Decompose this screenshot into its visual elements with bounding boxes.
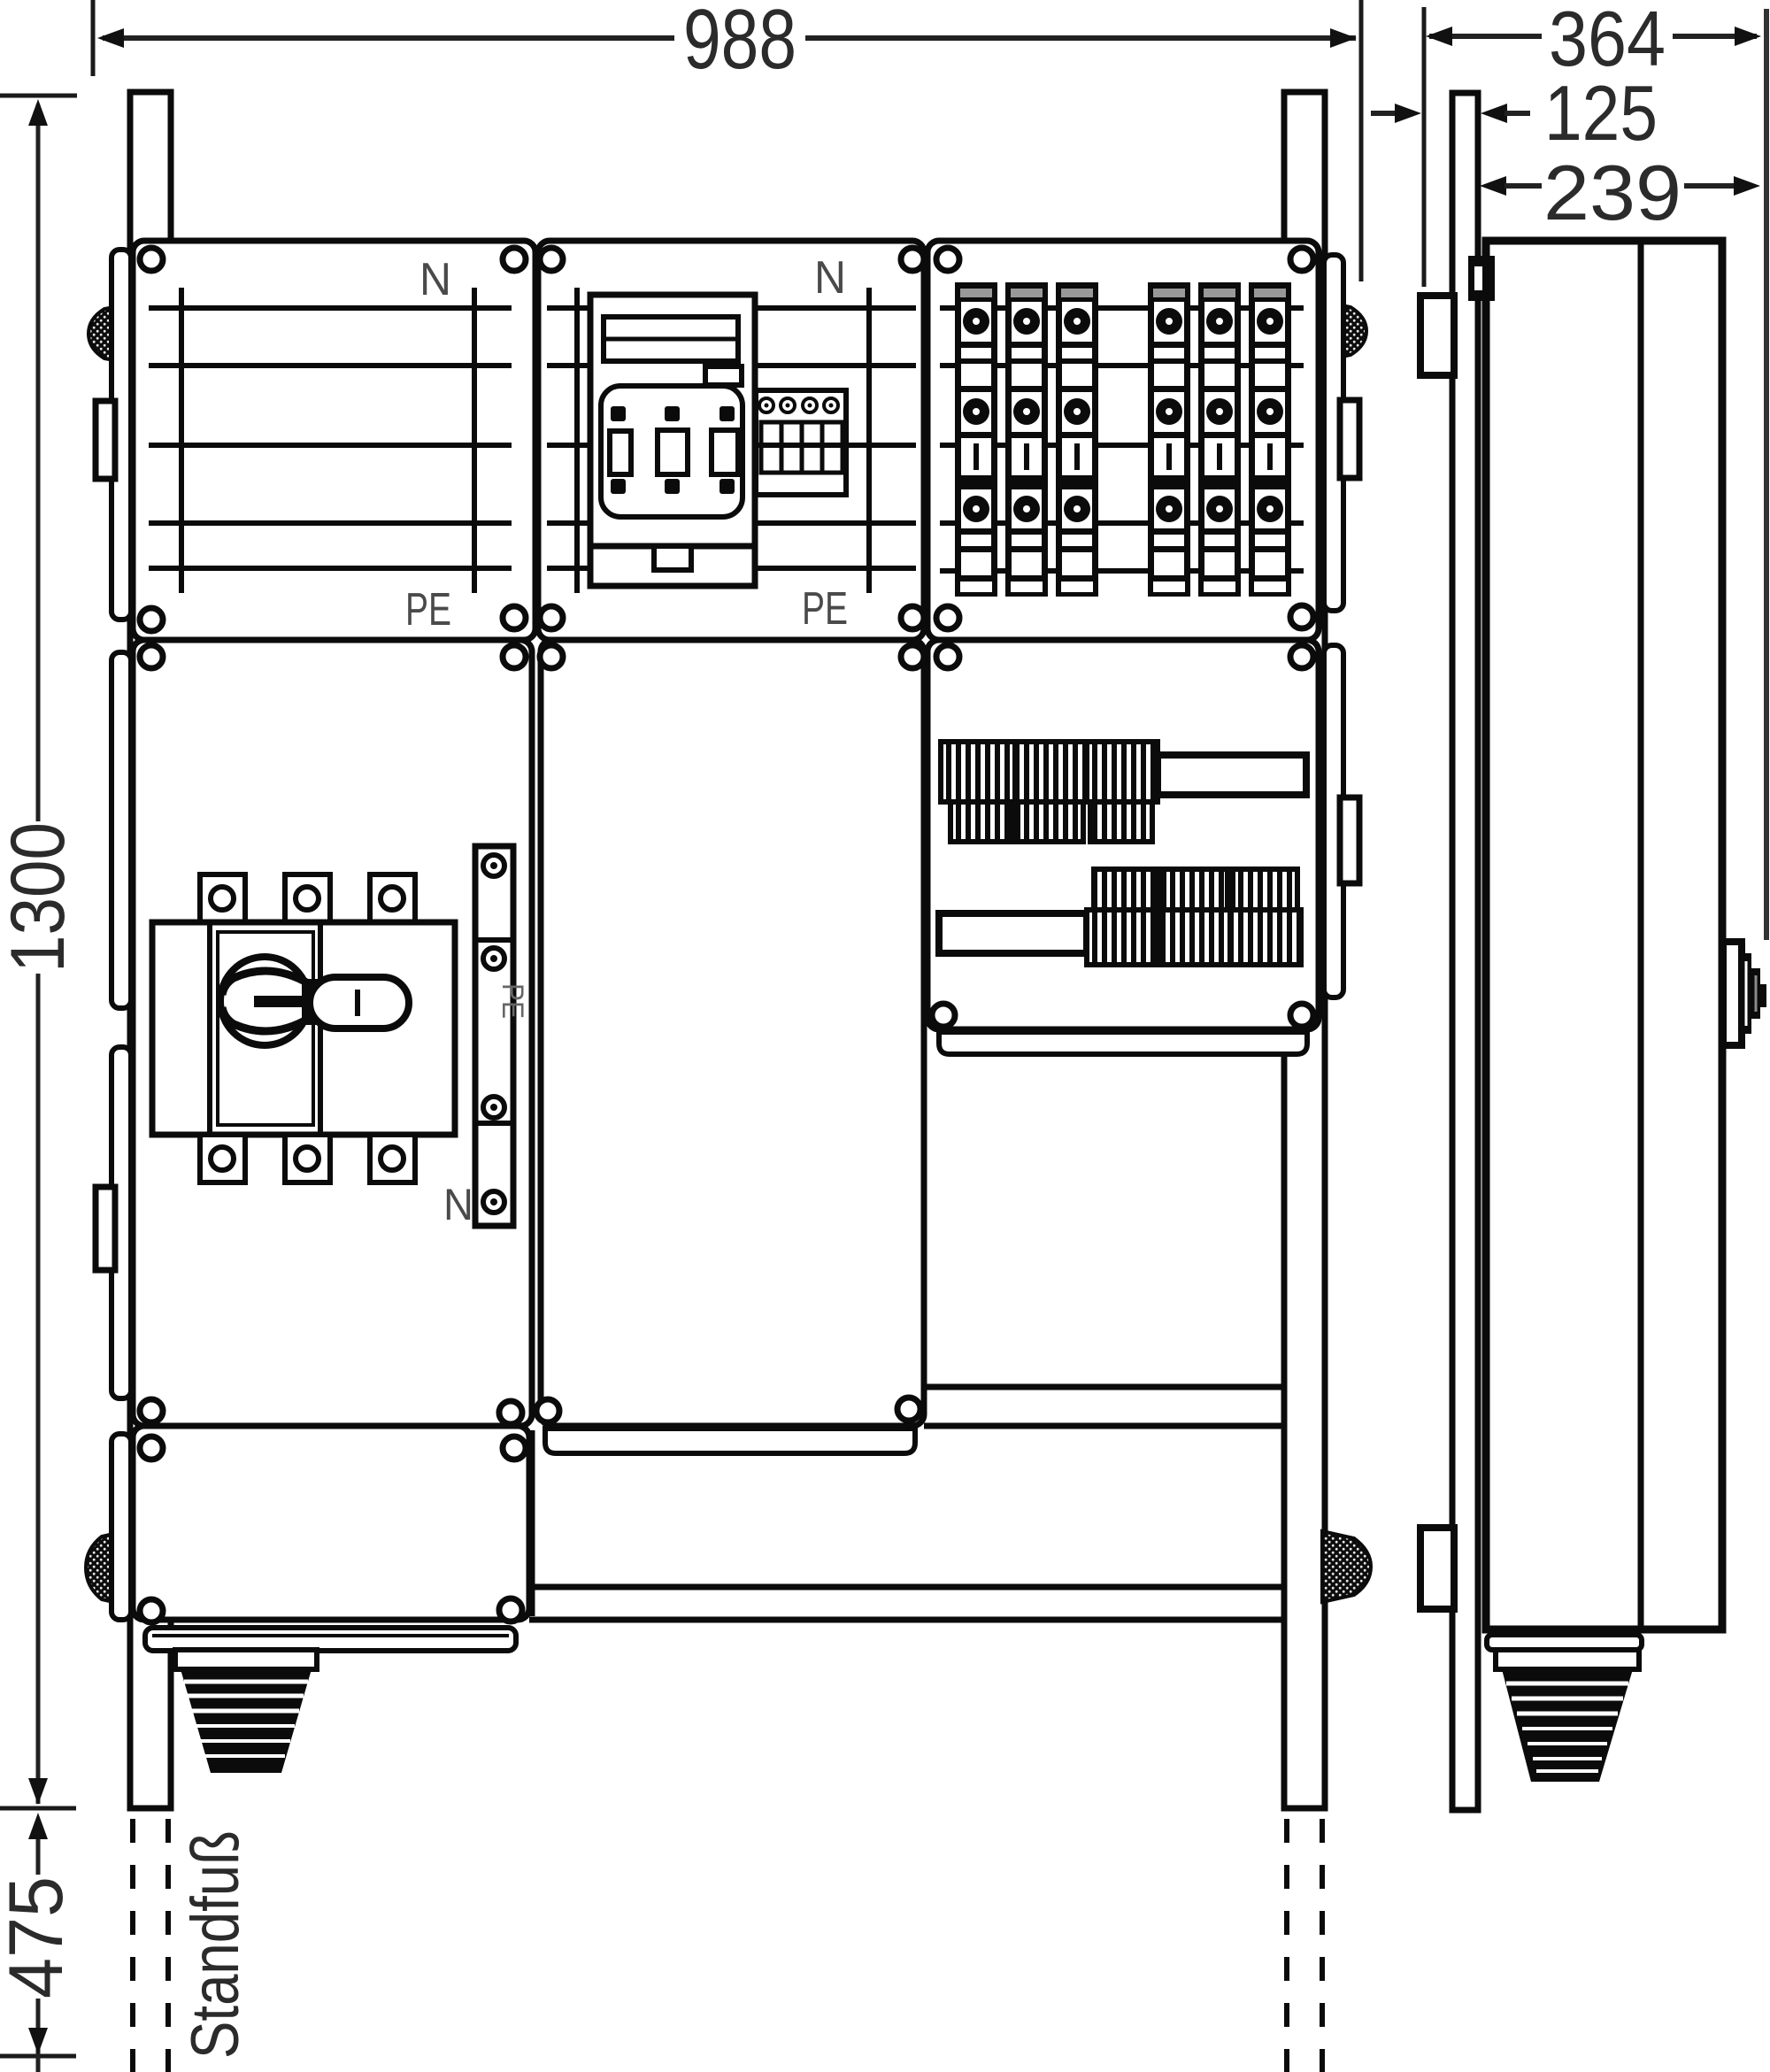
svg-text:N: N (419, 254, 451, 305)
svg-text:988: 988 (683, 0, 796, 87)
svg-text:N: N (814, 252, 846, 304)
svg-text:PE: PE (802, 583, 848, 635)
svg-text:125: 125 (1544, 69, 1658, 157)
svg-text:475: 475 (0, 1876, 79, 1999)
svg-text:1300: 1300 (0, 822, 81, 973)
svg-text:Standfuß: Standfuß (178, 1830, 253, 2059)
svg-text:PE: PE (405, 584, 451, 635)
svg-text:N: N (443, 1180, 473, 1229)
svg-text:PE: PE (496, 983, 529, 1019)
svg-text:239: 239 (1543, 149, 1681, 236)
